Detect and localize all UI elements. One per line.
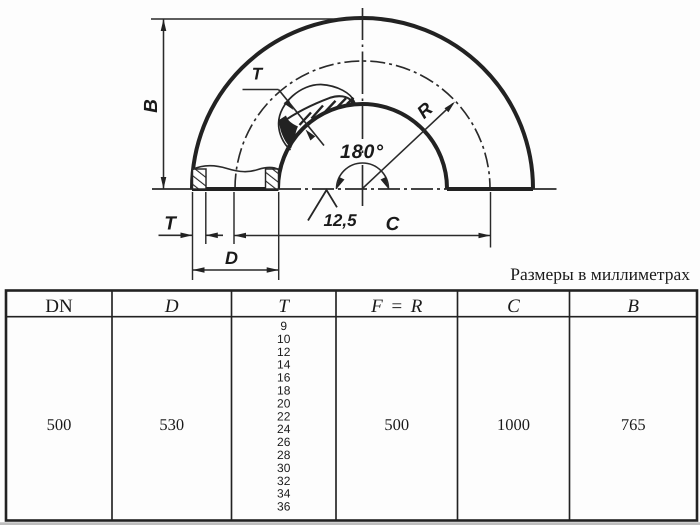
svg-text:T: T [278,296,290,317]
svg-text:500: 500 [47,415,72,434]
svg-text:34: 34 [277,487,291,501]
svg-text:T: T [252,65,264,84]
svg-text:C: C [386,214,400,235]
svg-text:T: T [164,214,177,235]
svg-text:1000: 1000 [497,415,530,434]
svg-text:28: 28 [277,448,291,462]
svg-text:B: B [627,296,639,317]
svg-text:9: 9 [280,319,287,333]
svg-text:C: C [507,296,520,317]
svg-text:B: B [141,99,162,113]
svg-text:180°: 180° [340,141,384,163]
svg-text:765: 765 [621,415,646,434]
svg-text:26: 26 [277,435,291,449]
svg-text:10: 10 [277,332,291,346]
svg-text:12: 12 [277,345,291,359]
svg-text:F = R: F = R [370,296,423,317]
svg-text:24: 24 [277,422,291,436]
svg-text:14: 14 [277,358,291,372]
svg-text:D: D [225,248,238,268]
svg-text:30: 30 [277,461,291,475]
svg-text:32: 32 [277,474,291,488]
svg-text:D: D [164,296,179,317]
svg-text:20: 20 [277,396,291,410]
svg-text:12,5: 12,5 [323,211,357,230]
svg-text:500: 500 [384,415,409,434]
svg-text:36: 36 [277,500,291,514]
svg-text:16: 16 [277,371,291,385]
svg-text:22: 22 [277,409,291,423]
svg-text:Размеры в миллиметрах: Размеры в миллиметрах [510,264,690,284]
svg-text:DN: DN [45,296,73,317]
svg-text:18: 18 [277,384,291,398]
svg-text:530: 530 [159,415,184,434]
